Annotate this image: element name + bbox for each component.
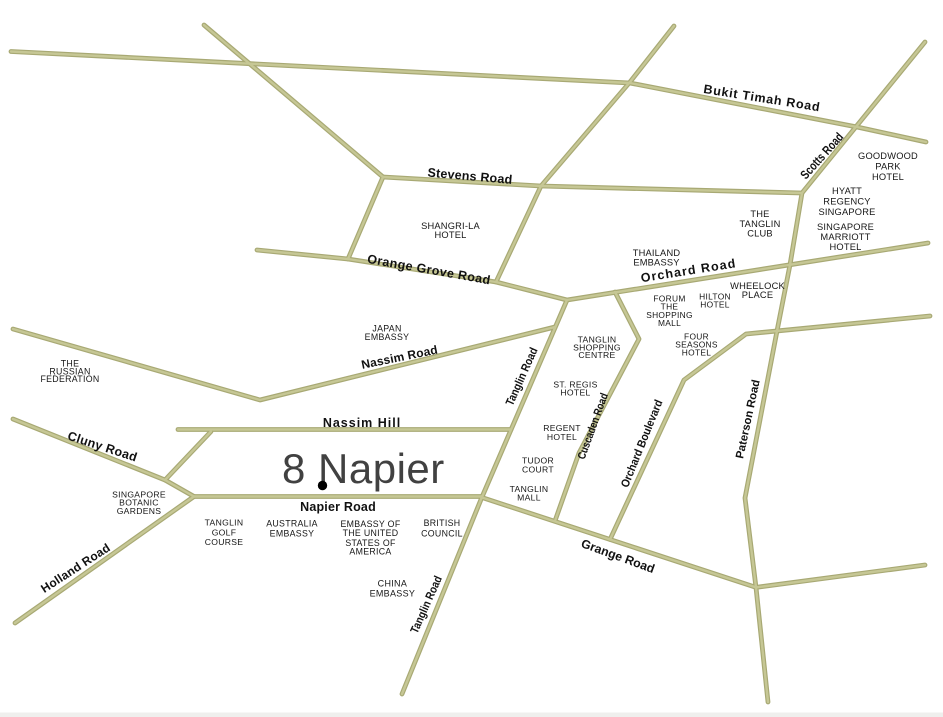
- svg-text:8 Napier: 8 Napier: [282, 445, 445, 492]
- svg-text:REGENTHOTEL: REGENTHOTEL: [543, 423, 581, 442]
- svg-text:THAILANDEMBASSY: THAILANDEMBASSY: [633, 248, 681, 268]
- svg-text:AUSTRALIAEMBASSY: AUSTRALIAEMBASSY: [266, 519, 318, 539]
- svg-text:BRITISHCOUNCIL: BRITISHCOUNCIL: [421, 518, 463, 538]
- svg-text:HILTONHOTEL: HILTONHOTEL: [699, 291, 731, 309]
- svg-text:Nassim Hill: Nassim Hill: [323, 416, 401, 430]
- svg-text:SINGAPOREBOTANICGARDENS: SINGAPOREBOTANICGARDENS: [112, 489, 166, 516]
- svg-text:Napier Road: Napier Road: [300, 500, 376, 514]
- svg-text:TUDORCOURT: TUDORCOURT: [522, 455, 554, 474]
- svg-text:TANGLINSHOPPINGCENTRE: TANGLINSHOPPINGCENTRE: [573, 334, 621, 360]
